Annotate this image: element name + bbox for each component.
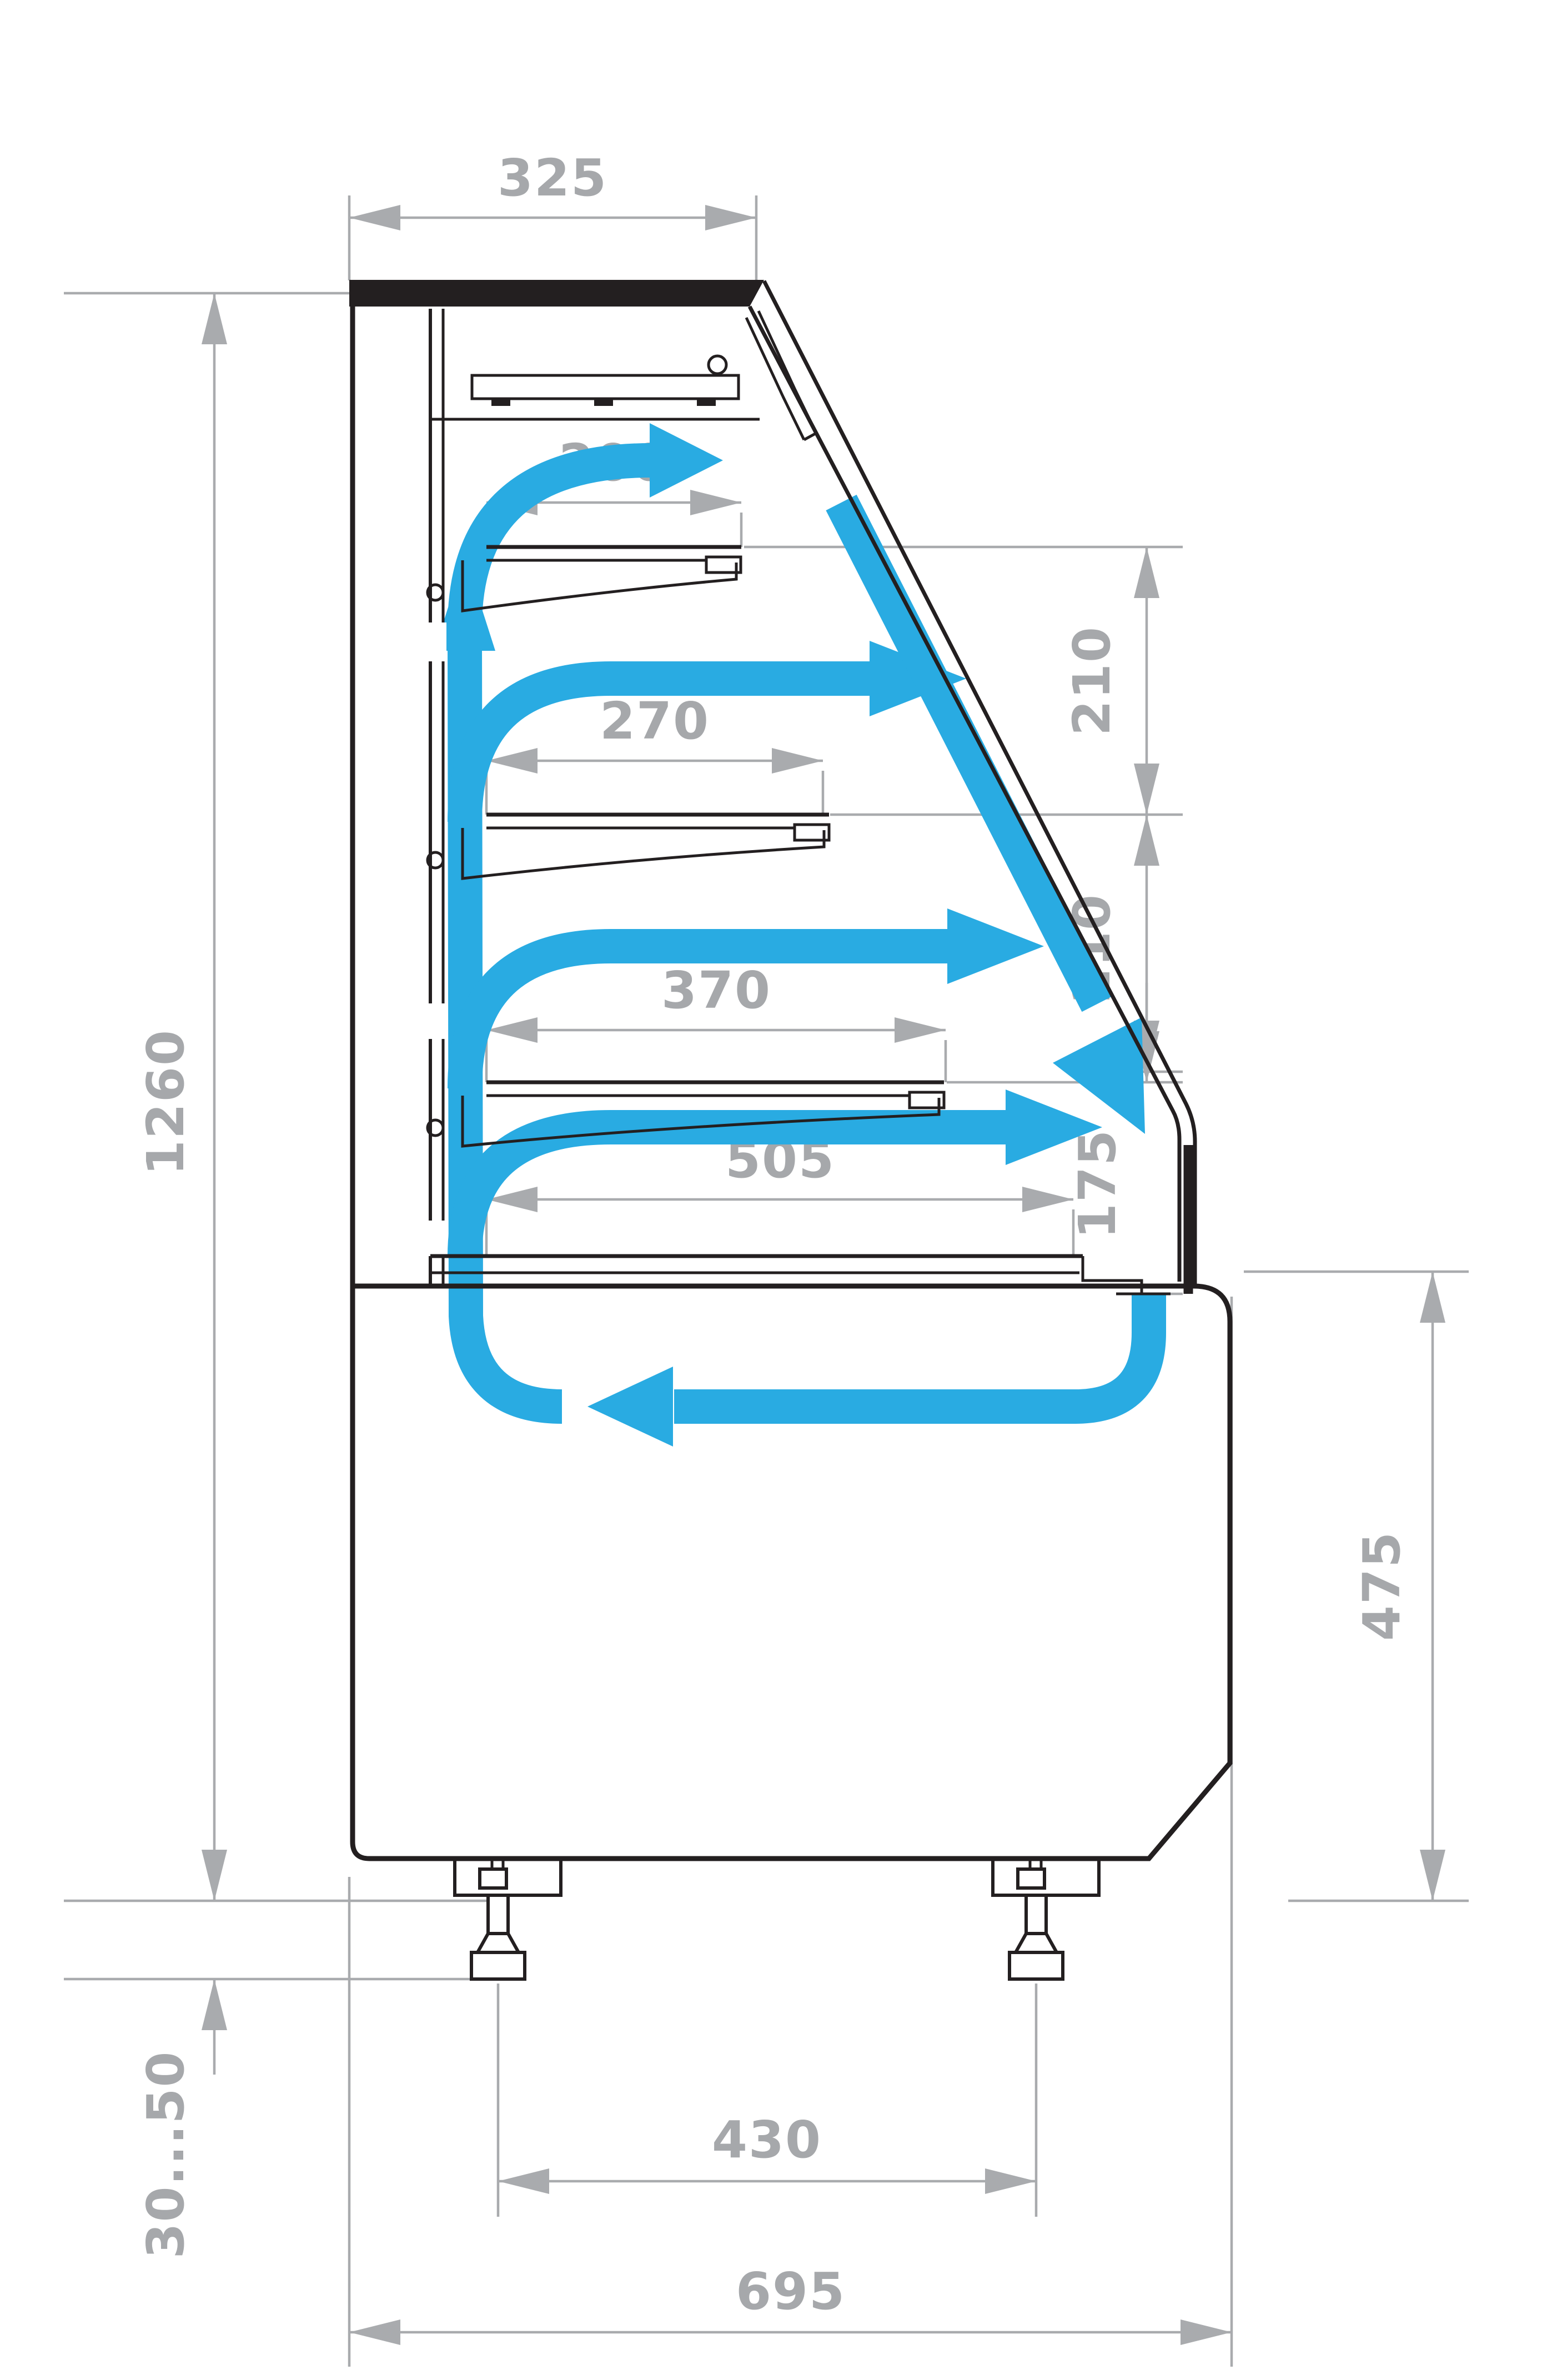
leg-cone-left	[478, 1934, 519, 1952]
dim-label-base-height: 475	[1352, 1531, 1412, 1641]
airflow-right-arrowhead-icon	[947, 908, 1044, 984]
leg-nut-right	[1018, 1869, 1044, 1888]
dim-label-shelf2-depth: 270	[600, 691, 710, 751]
dim-label-leg-spacing: 430	[712, 2110, 822, 2170]
arrowhead	[895, 1017, 946, 1043]
canopy-lamp-housing	[472, 375, 739, 399]
arrowhead	[772, 748, 823, 774]
arrowhead	[349, 2319, 400, 2345]
leg-stem-right	[1026, 1895, 1046, 1934]
display-case-diagram: 325 1260 30...50 200 270 370	[0, 0, 1542, 2380]
arrowhead	[705, 205, 756, 230]
leg-foot-right	[1009, 1952, 1063, 1979]
arrowhead	[498, 2168, 549, 2194]
canopy-top-bar	[349, 280, 764, 307]
leg-cone-right	[1016, 1934, 1057, 1952]
arrowhead	[690, 490, 741, 515]
leg-foot-left	[471, 1952, 525, 1979]
arrowhead	[202, 1979, 227, 2030]
dim-label-shelf3-depth: 370	[661, 961, 771, 1020]
rail-slot	[425, 622, 446, 661]
arrowhead	[1022, 1187, 1073, 1212]
canopy-sensor-icon	[709, 356, 726, 374]
airflow-left-arrowhead-icon	[587, 1367, 673, 1447]
dim-label-top-depth: 325	[498, 148, 607, 208]
leg-nut-left	[480, 1869, 506, 1888]
lamp-tab	[491, 399, 510, 406]
arrowhead	[1420, 1850, 1445, 1901]
dim-label-leg-adjust: 30...50	[136, 2051, 195, 2259]
arrowhead	[1134, 547, 1159, 598]
dim-label-front-opening: 175	[1068, 1129, 1127, 1239]
arrowhead	[1181, 2319, 1232, 2345]
dim-label-overall-height: 1260	[136, 1029, 195, 1176]
shelf-2-bracket	[463, 828, 824, 878]
dim-label-tier-gap-upper: 210	[1062, 626, 1122, 736]
arrowhead	[1134, 764, 1159, 815]
drawing-page: 325 1260 30...50 200 270 370	[0, 0, 1542, 2380]
airflow-arrows	[434, 423, 1149, 1447]
arrowhead	[985, 2168, 1036, 2194]
arrowhead	[349, 205, 400, 230]
airflow-right-arrowhead-icon	[650, 423, 723, 498]
dim-label-overall-depth: 695	[736, 2262, 846, 2321]
rail-slot	[425, 1221, 446, 1256]
lamp-tab	[594, 399, 613, 406]
arrowhead	[1420, 1272, 1445, 1323]
shelf-1-bracket	[463, 560, 736, 611]
arrowhead	[202, 1850, 227, 1901]
lamp-tab	[697, 399, 716, 406]
arrowhead	[202, 293, 227, 344]
rail-slot	[425, 1003, 446, 1039]
arrowhead	[1134, 815, 1159, 866]
leg-stem-left	[488, 1895, 508, 1934]
airflow-return-band	[674, 1294, 1149, 1407]
